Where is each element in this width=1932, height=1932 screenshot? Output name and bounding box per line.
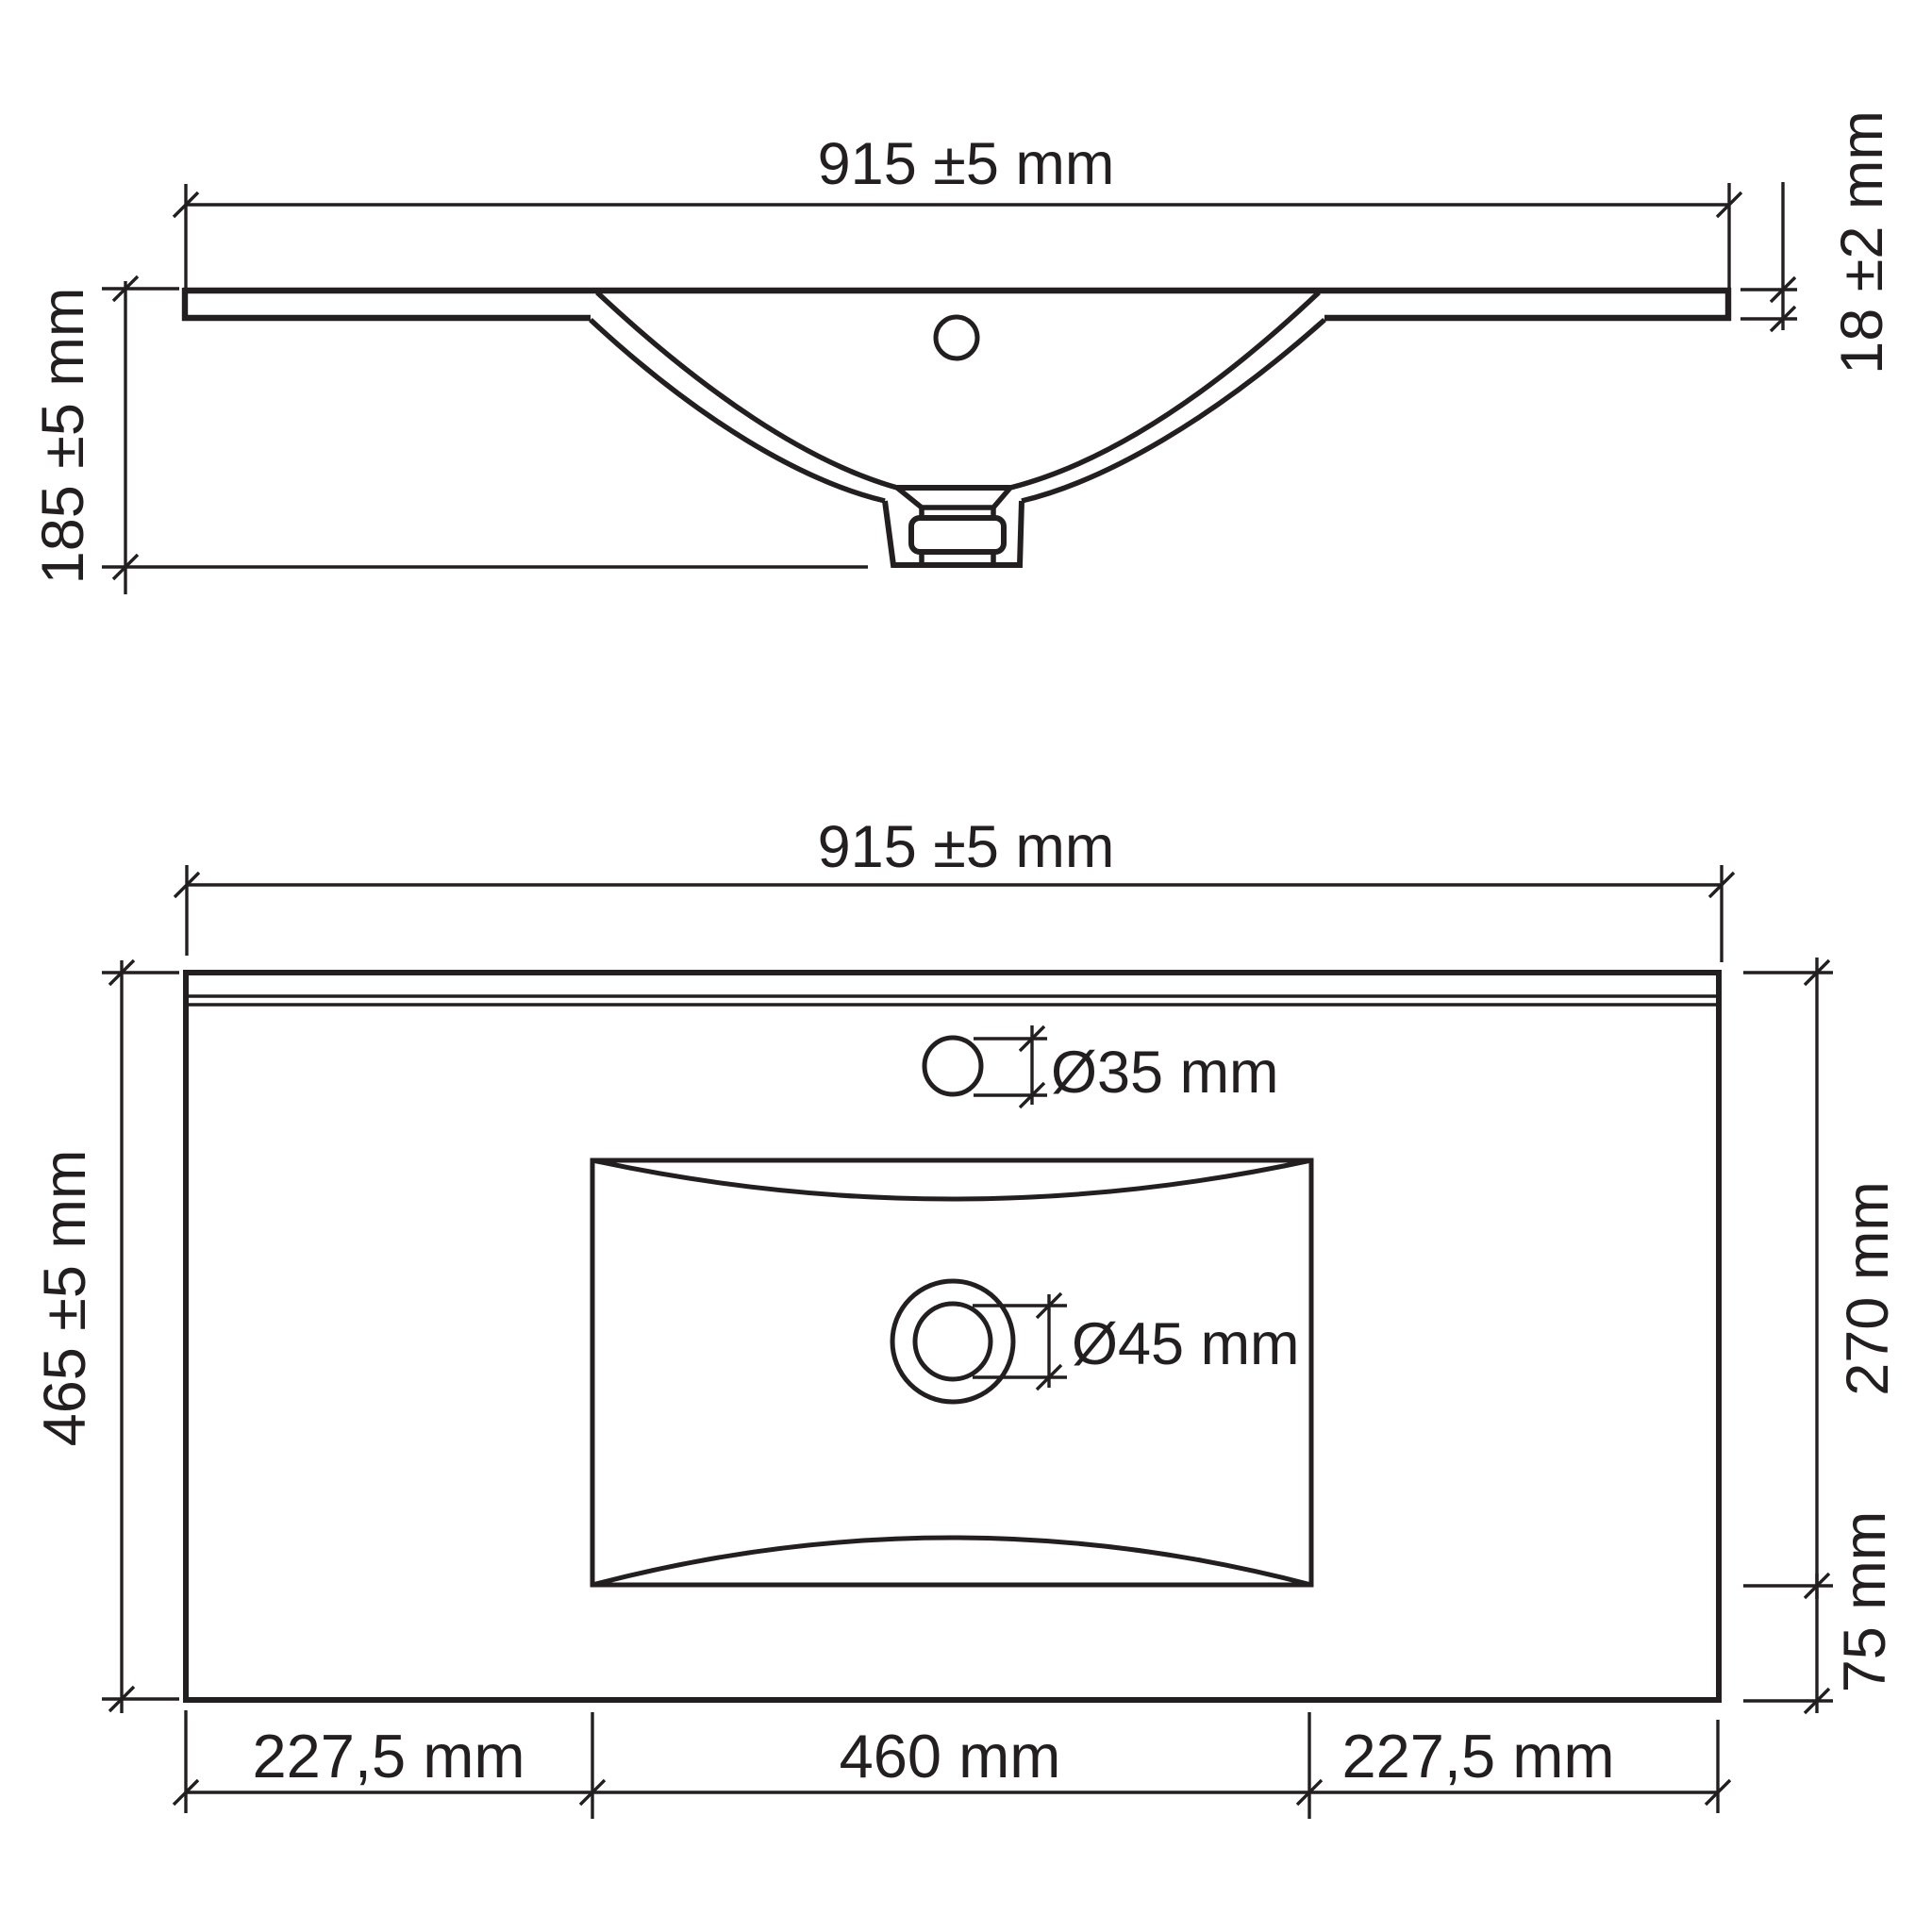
svg-text:75 mm: 75 mm <box>1832 1511 1898 1693</box>
svg-text:185 ±5 mm: 185 ±5 mm <box>30 288 96 585</box>
svg-text:915 ±5 mm: 915 ±5 mm <box>818 131 1115 197</box>
svg-text:227,5 mm: 227,5 mm <box>252 1722 525 1790</box>
svg-text:465 ±5 mm: 465 ±5 mm <box>32 1150 98 1447</box>
svg-text:227,5 mm: 227,5 mm <box>1341 1722 1614 1790</box>
svg-text:915 ±5 mm: 915 ±5 mm <box>818 814 1115 880</box>
svg-text:460 mm: 460 mm <box>840 1722 1061 1790</box>
svg-text:Ø45 mm: Ø45 mm <box>1072 1311 1300 1377</box>
svg-text:18 ±2 mm: 18 ±2 mm <box>1829 110 1895 375</box>
svg-text:Ø35 mm: Ø35 mm <box>1051 1040 1279 1106</box>
svg-text:270 mm: 270 mm <box>1835 1181 1901 1396</box>
